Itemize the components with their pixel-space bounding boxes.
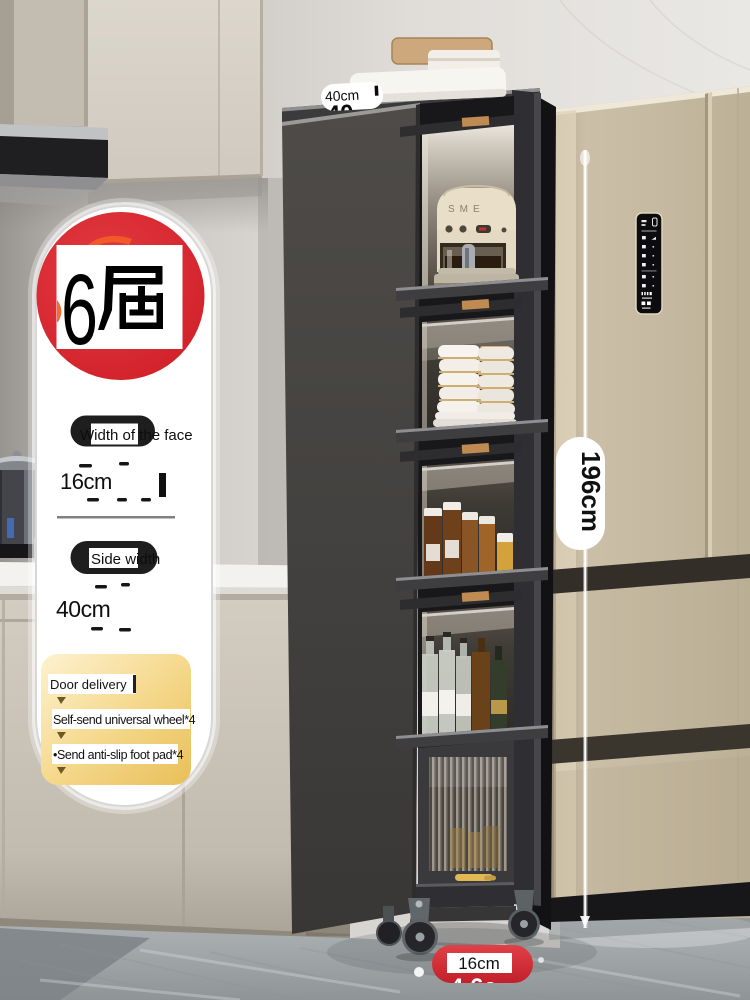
svg-text:SME: SME — [448, 204, 485, 215]
svg-text:196cm: 196cm — [576, 451, 606, 532]
svg-text:16cm: 16cm — [458, 954, 500, 973]
svg-text:6: 6 — [61, 254, 98, 366]
svg-text:Self-send universal wheel*4: Self-send universal wheel*4 — [53, 713, 196, 727]
svg-text:Door delivery: Door delivery — [50, 677, 127, 692]
svg-text:Side width: Side width — [91, 551, 160, 568]
svg-text:40cm: 40cm — [56, 596, 110, 622]
svg-text:40cm: 40cm — [325, 87, 360, 105]
svg-text:•Send anti-slip foot pad*4: •Send anti-slip foot pad*4 — [53, 748, 184, 762]
svg-text:16cm: 16cm — [60, 469, 112, 494]
svg-text:Width of the face: Width of the face — [80, 427, 193, 444]
